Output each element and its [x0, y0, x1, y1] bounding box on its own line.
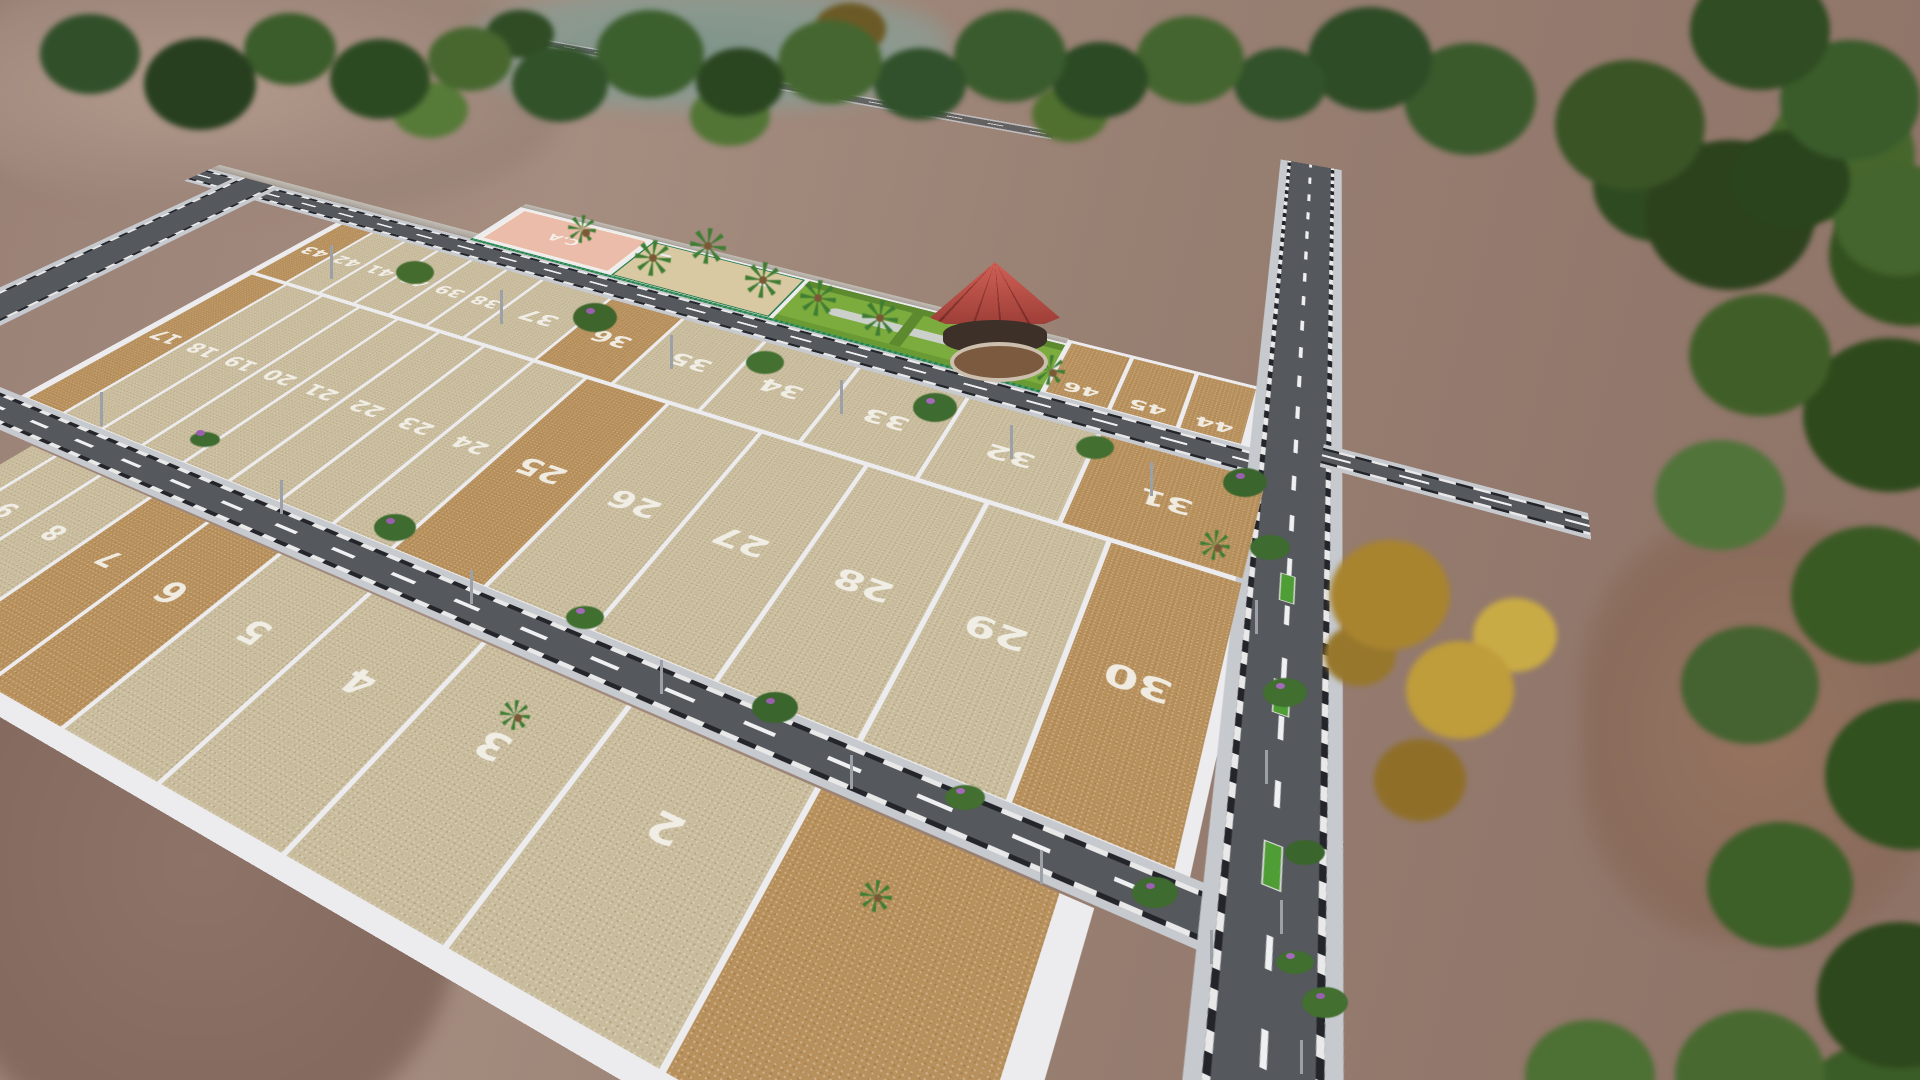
kerb-shrub: [190, 432, 220, 447]
palm-tree: [500, 700, 530, 730]
tree-yellow: [1330, 540, 1450, 650]
palm-tree: [690, 228, 726, 264]
gazebo-base: [950, 342, 1048, 382]
palm-tree: [568, 215, 596, 243]
road-median-island: [1279, 572, 1296, 604]
tree-canopy-top: [40, 14, 140, 94]
road-median-island: [1261, 839, 1283, 892]
palm-tree: [1200, 530, 1230, 560]
palm-tree: [800, 280, 836, 316]
gazebo-roof: [930, 262, 1060, 324]
plot-43-label: 43: [297, 244, 334, 259]
northeast-branch-road: [1320, 444, 1591, 539]
palm-tree: [635, 240, 671, 276]
road-median-island: [1272, 678, 1291, 718]
street-lamp: [100, 392, 103, 426]
tree-top-right-overhang: [1690, 0, 1830, 90]
scene: 43 42 41 40 39 38 37 36 35 34 33 32 31 1…: [0, 0, 1920, 1080]
palm-tree: [745, 262, 781, 298]
plot-44: 44: [1180, 375, 1256, 444]
tree-canopy-right: [1555, 60, 1705, 190]
palm-tree: [862, 300, 898, 336]
gazebo: [930, 262, 1060, 382]
palm-tree: [860, 880, 892, 912]
shrub-flowers: [196, 430, 205, 436]
